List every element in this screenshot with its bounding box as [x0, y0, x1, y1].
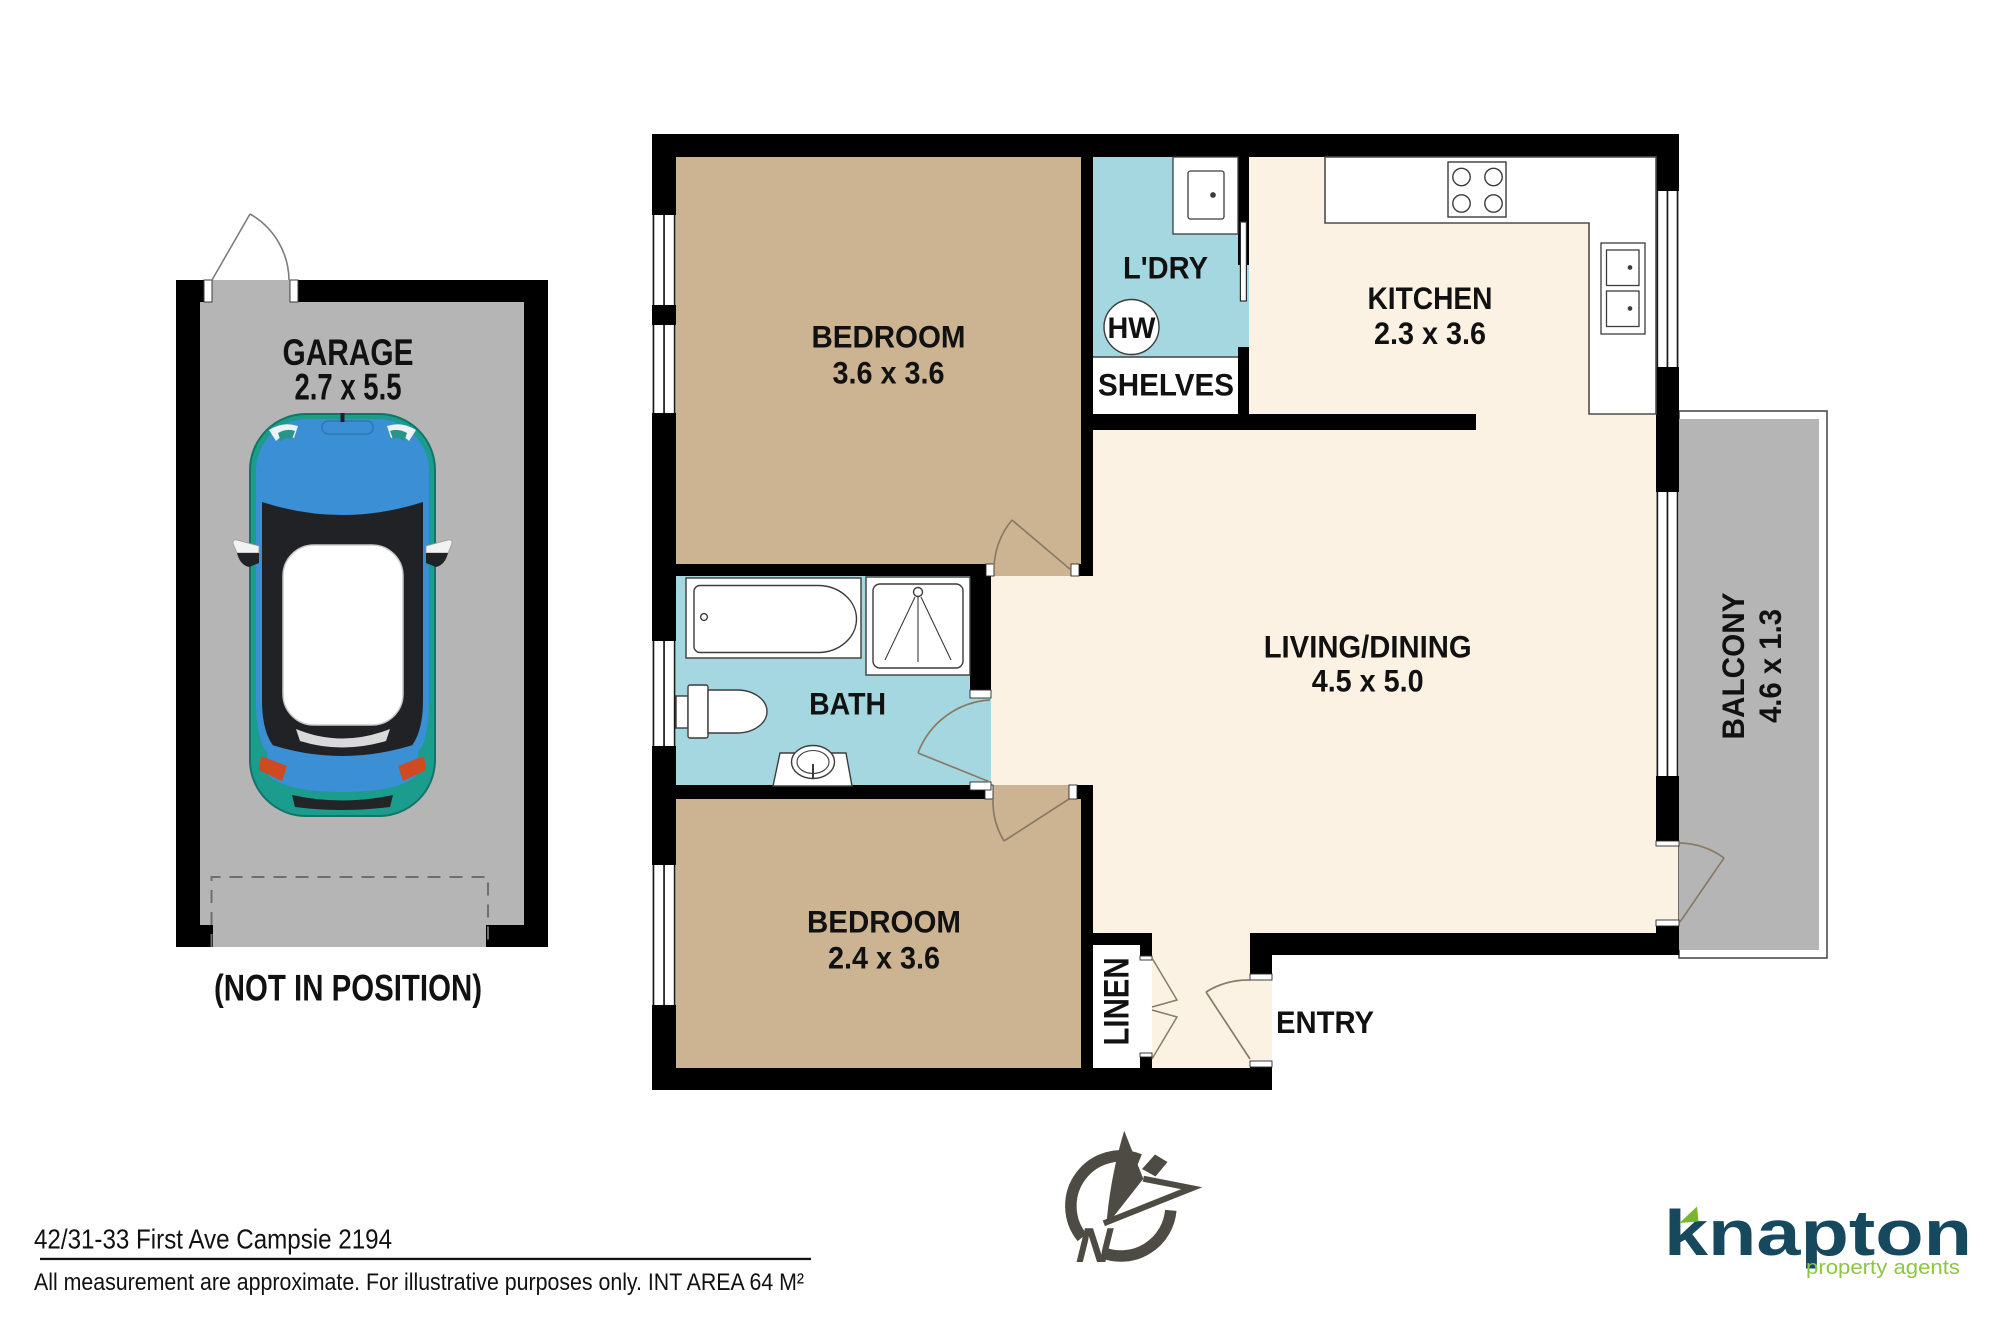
svg-text:4.6 x 1.3: 4.6 x 1.3 [1752, 609, 1788, 723]
svg-text:BALCONY: BALCONY [1715, 593, 1751, 740]
svg-text:BEDROOM: BEDROOM [812, 319, 966, 355]
svg-text:BEDROOM: BEDROOM [807, 903, 961, 939]
svg-text:HW: HW [1108, 312, 1157, 345]
svg-text:property agents: property agents [1806, 1256, 1960, 1279]
svg-text:2.3 x 3.6: 2.3 x 3.6 [1374, 315, 1486, 351]
svg-text:BATH: BATH [809, 686, 886, 722]
svg-text:(NOT IN POSITION): (NOT IN POSITION) [214, 968, 482, 1009]
svg-text:42/31-33 First Ave Campsie 219: 42/31-33 First Ave Campsie 2194 [34, 1224, 392, 1255]
svg-text:2.4 x 3.6: 2.4 x 3.6 [828, 940, 940, 976]
svg-text:LINEN: LINEN [1098, 958, 1137, 1046]
svg-text:ENTRY: ENTRY [1276, 1004, 1374, 1040]
svg-text:3.6 x 3.6: 3.6 x 3.6 [833, 355, 945, 391]
svg-text:SHELVES: SHELVES [1098, 367, 1234, 403]
svg-text:LIVING/DINING: LIVING/DINING [1264, 629, 1472, 665]
svg-text:2.7 x 5.5: 2.7 x 5.5 [295, 367, 402, 408]
svg-text:KITCHEN: KITCHEN [1368, 280, 1493, 316]
svg-text:L'DRY: L'DRY [1123, 250, 1208, 286]
svg-text:4.5 x 5.0: 4.5 x 5.0 [1312, 662, 1424, 698]
svg-text:All measurement are approximat: All measurement are approximate. For ill… [34, 1269, 804, 1296]
